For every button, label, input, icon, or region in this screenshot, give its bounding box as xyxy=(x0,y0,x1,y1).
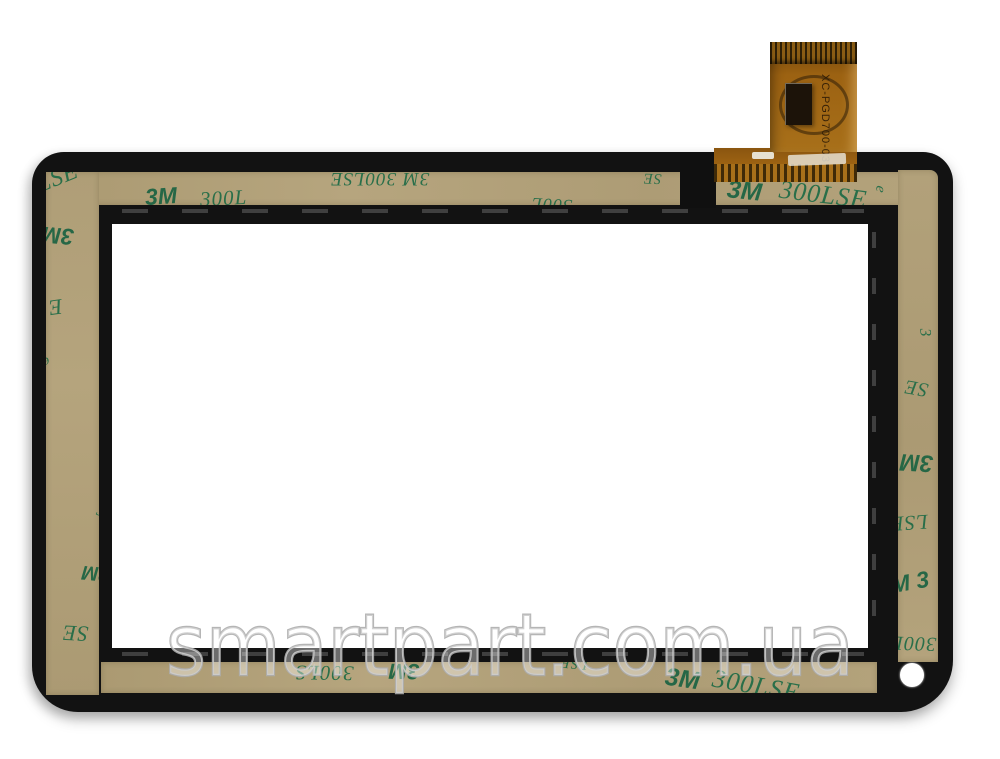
tape-print: 300LS xyxy=(295,662,354,684)
flex-bond-highlight xyxy=(788,153,846,166)
touch-glass-window xyxy=(112,224,868,648)
tape-strip-bottom: 300LS3MLSE3M300LSE xyxy=(101,662,877,693)
electrode-dashes-right xyxy=(872,232,876,642)
tape-print: 3M xyxy=(663,665,701,693)
tape-print: e xyxy=(46,353,51,369)
tape-print: LSE xyxy=(559,662,588,671)
flex-bond-highlight-small xyxy=(752,152,774,159)
electrode-dashes-bottom xyxy=(122,652,864,656)
mounting-hole xyxy=(900,663,924,687)
tape-print: 3M xyxy=(899,449,934,475)
flex-stiffener-component xyxy=(785,83,812,125)
product-photo: 3M300L3M 300LSE300LSE3M300LSE LSE3MEe33M… xyxy=(0,0,1000,759)
flex-connector-fingers xyxy=(770,42,857,64)
tape-print: 3 xyxy=(95,501,99,520)
tape-print: 3M xyxy=(46,223,75,249)
tape-print: 3M 3 xyxy=(898,568,931,600)
tape-print: E xyxy=(47,295,64,319)
tape-print: SE xyxy=(61,621,89,644)
tape-print: LSE xyxy=(46,172,82,197)
tape-print: 300L xyxy=(531,195,573,205)
tape-print: SE xyxy=(902,376,929,400)
tape-print: 3 xyxy=(916,328,933,338)
tape-print: 300L xyxy=(199,187,247,205)
tape-print: 3M xyxy=(81,562,99,584)
tape-print: 300LS xyxy=(898,632,936,654)
tape-strip-left: LSE3MEe33MSE xyxy=(46,172,99,695)
flex-bond-notch xyxy=(680,152,716,208)
tape-strip-right: 3SE3MLSE3M 3300LS xyxy=(898,170,938,662)
tape-print: LSE xyxy=(898,511,929,535)
tape-print: 3M xyxy=(144,184,177,205)
tape-print: 300LSE xyxy=(710,666,802,693)
tape-print: 3M xyxy=(389,662,420,682)
tape-print: SE xyxy=(643,172,662,185)
tape-print: 3M 300LSE xyxy=(330,172,429,188)
flex-cable-bond-teeth xyxy=(714,164,857,182)
electrode-dashes-top xyxy=(122,209,864,213)
